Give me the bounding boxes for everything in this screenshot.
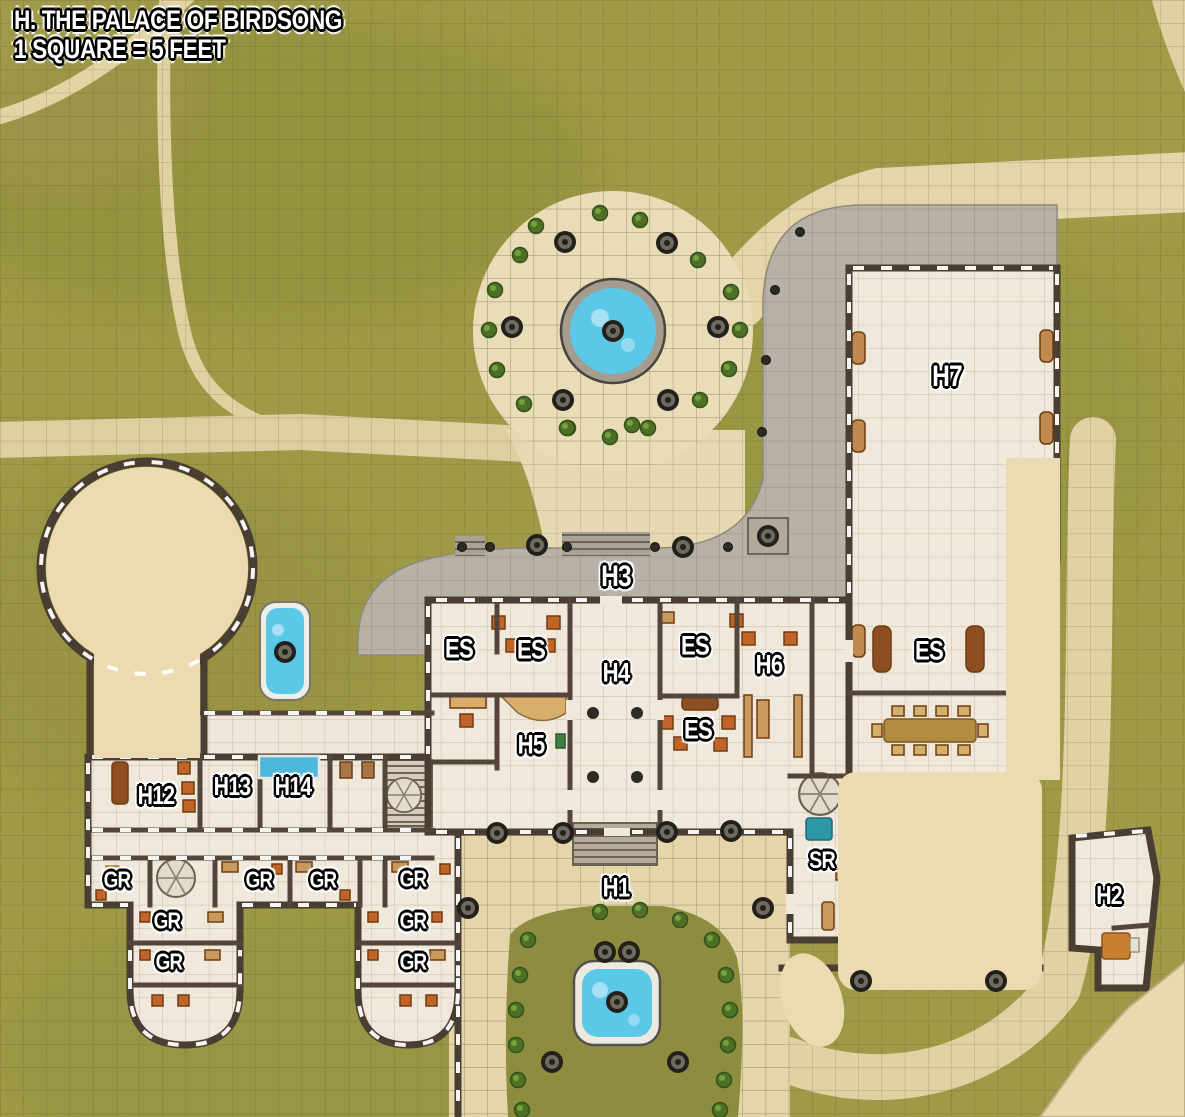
masked-tower-stem (94, 622, 200, 758)
indoor-pool-h14 (259, 756, 319, 778)
map-title-line2: 1 SQUARE = 5 FEET (14, 35, 342, 64)
battle-map: H. THE PALACE OF BIRDSONG 1 SQUARE = 5 F… (0, 0, 1185, 1117)
square-fountain (574, 961, 660, 1045)
masked-strip-h7 (1006, 458, 1060, 780)
reflecting-pool (260, 602, 310, 700)
round-fountain (561, 279, 665, 383)
masked-blob (838, 772, 1042, 990)
map-title: H. THE PALACE OF BIRDSONG 1 SQUARE = 5 F… (14, 6, 405, 63)
map-graphic (0, 0, 1185, 1117)
map-title-line1: H. THE PALACE OF BIRDSONG (14, 6, 342, 35)
